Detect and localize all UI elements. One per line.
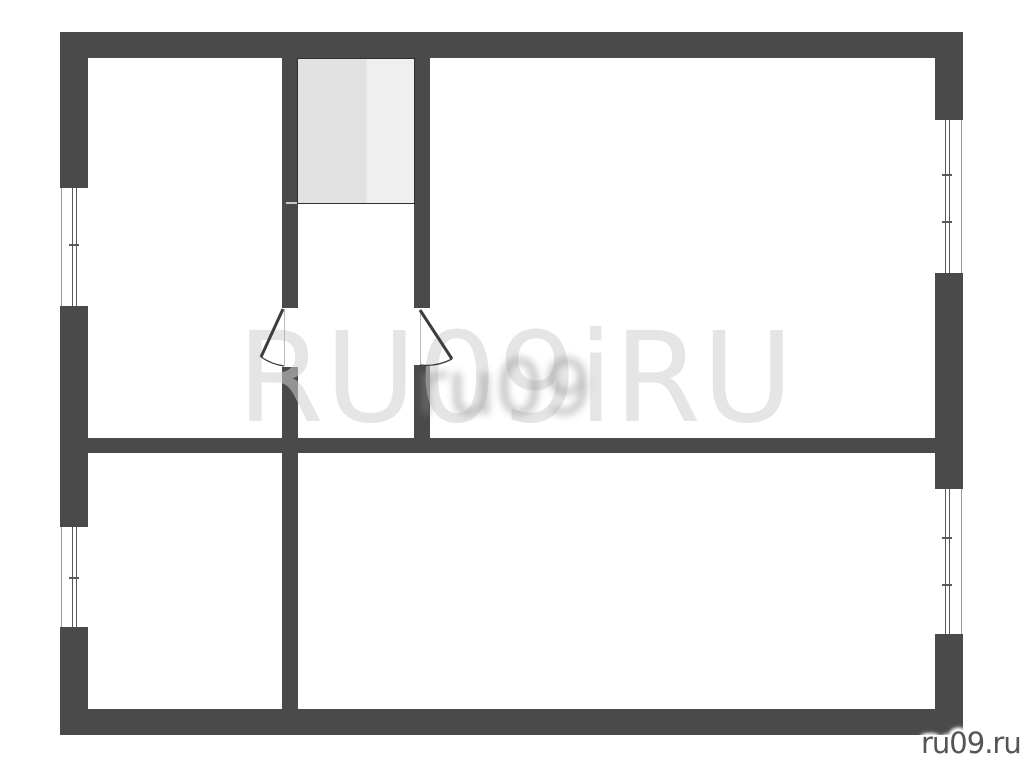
site-watermark-label: ru09.ru	[921, 726, 1021, 760]
door-right-leaf	[420, 310, 452, 359]
door-right-arc	[420, 359, 452, 365]
floor-plan-image: RU09iRU ru09 ru09.ru	[0, 0, 1024, 768]
door-left-arc	[261, 357, 284, 366]
door-left-leaf	[261, 309, 283, 357]
door-swings-layer	[0, 0, 1024, 768]
